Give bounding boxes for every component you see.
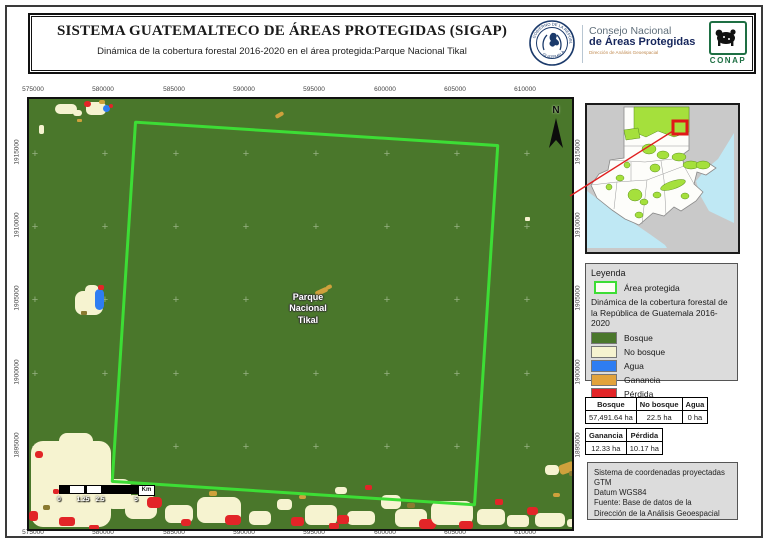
table-header-cell: Agua <box>682 398 708 411</box>
y-tick-label: 1905000 <box>14 285 21 310</box>
landcover-patch <box>573 509 574 515</box>
legend-swatch <box>591 346 617 358</box>
coordinate-info-box: Sistema de coordenadas proyectadasGTMDat… <box>587 462 738 520</box>
x-tick-label: 575000 <box>22 86 44 93</box>
landcover-patch <box>181 519 191 526</box>
conap-jaguar-icon <box>709 21 747 55</box>
info-line: Fuente: Base de datos de la <box>594 498 731 508</box>
scale-bar-segment <box>70 486 84 493</box>
legend-item-label: Agua <box>624 361 644 371</box>
landcover-patch <box>291 517 304 526</box>
x-tick-label: 610000 <box>514 86 536 93</box>
conap-logo: CONAP <box>704 21 752 69</box>
info-line: Datum WGS84 <box>594 488 731 498</box>
table-value-row: 57,491.64 ha22.5 ha0 ha <box>586 411 708 424</box>
y-tick-label: 1910000 <box>14 212 21 237</box>
x-tick-label: 585000 <box>163 86 185 93</box>
title-block: SISTEMA GUATEMALTECO DE ÁREAS PROTEGIDAS… <box>32 23 532 57</box>
landcover-patch <box>459 521 473 529</box>
landcover-patch <box>407 503 415 508</box>
legend-item: No bosque <box>591 346 732 358</box>
landcover-patch <box>39 125 44 134</box>
landcover-patch <box>525 217 530 221</box>
landcover-patch <box>99 100 105 104</box>
table-value-cell: 0 ha <box>682 411 708 424</box>
landcover-patch <box>59 517 75 526</box>
landcover-patch <box>535 513 565 527</box>
conap-logo-text: CONAP <box>704 56 752 65</box>
map-layout-page: SISTEMA GUATEMALTECO DE ÁREAS PROTEGIDAS… <box>0 0 768 543</box>
inset-locator-map <box>585 103 740 254</box>
guatemala-inset-icon <box>587 105 734 248</box>
legend-items: BosqueNo bosqueAguaGananciaPérdida <box>591 332 732 400</box>
landcover-patch <box>275 111 285 119</box>
landcover-patch <box>329 523 339 529</box>
header-inner-border: SISTEMA GUATEMALTECO DE ÁREAS PROTEGIDAS… <box>31 16 753 71</box>
table-header-cell: Ganancia <box>586 429 627 442</box>
landcover-patch <box>43 505 50 510</box>
landcover-patch <box>29 511 38 521</box>
x-tick-label: 605000 <box>444 86 466 93</box>
scale-bar-label: 1.25 <box>77 496 90 503</box>
landcover-patch <box>347 511 375 525</box>
scale-bar-unit: Km <box>138 485 155 496</box>
legend-item: Agua <box>591 360 732 372</box>
landcover-patch <box>98 285 104 290</box>
landcover-patch <box>553 493 560 497</box>
table-header-cell: Bosque <box>586 398 637 411</box>
conap-line3: Dirección de Análisis Geoespacial <box>589 51 704 56</box>
legend-area-label: Área protegida <box>624 283 680 293</box>
landcover-patch <box>495 499 503 505</box>
landcover-patch <box>84 101 91 107</box>
landcover-patch <box>277 499 292 510</box>
legend-item-label: Ganancia <box>624 375 660 385</box>
landcover-patch <box>59 433 93 457</box>
page-title: SISTEMA GUATEMALTECO DE ÁREAS PROTEGIDAS… <box>32 23 532 40</box>
y-tick-label: 1915000 <box>14 139 21 164</box>
table-header-row: BosqueNo bosqueAgua <box>586 398 708 411</box>
scale-bar-segment <box>87 486 101 493</box>
north-arrow-icon <box>543 116 569 150</box>
scale-bar-segment <box>60 486 70 493</box>
y-tick-label: 1910000 <box>575 212 582 237</box>
conap-wordmark: Consejo Nacional de Áreas Protegidas Dir… <box>589 26 704 55</box>
info-line: GTM <box>594 478 731 488</box>
info-line: Dirección de la Análisis Geoespacial <box>594 509 731 519</box>
table-header-cell: No bosque <box>636 398 682 411</box>
landcover-patch <box>249 511 271 525</box>
landcover-patch <box>299 495 306 499</box>
table-value-cell: 12.33 ha <box>586 442 627 455</box>
landcover-patch <box>569 471 574 476</box>
table-value-cell: 10.17 ha <box>626 442 662 455</box>
x-tick-label: 600000 <box>374 86 396 93</box>
table-header-cell: Pérdida <box>626 429 662 442</box>
landcover-patch <box>95 289 104 310</box>
x-tick-label: 580000 <box>92 86 114 93</box>
header-box: SISTEMA GUATEMALTECO DE ÁREAS PROTEGIDAS… <box>28 13 756 74</box>
y-tick-label: 1915000 <box>575 139 582 164</box>
legend-swatch <box>591 332 617 344</box>
landcover-patch <box>225 515 241 525</box>
page-subtitle: Dinámica de la cobertura forestal 2016-2… <box>32 46 532 57</box>
legend-area-item: Área protegida <box>591 281 732 294</box>
landcover-patch <box>545 465 559 475</box>
scale-bar-label: 5 <box>134 496 138 503</box>
landcover-patch <box>209 491 217 496</box>
main-map: ++++++++++++++++++++++++++++++++++++++++… <box>27 97 574 531</box>
scale-bar-label: 2.5 <box>95 496 104 503</box>
landcover-patch <box>507 515 529 527</box>
logo-separator <box>582 25 583 63</box>
landcover-patch <box>109 104 113 108</box>
y-tick-label: 1895000 <box>14 432 21 457</box>
landcover-patch <box>567 519 574 527</box>
scale-bar-segment <box>101 486 137 493</box>
scale-bar-segments <box>59 485 138 494</box>
protected-area-swatch <box>594 281 617 294</box>
legend-panel: Leyenda Área protegida Dinámica de la co… <box>585 263 738 381</box>
scale-bar-label: 0 <box>57 496 61 503</box>
legend-item: Ganancia <box>591 374 732 386</box>
legend-title: Leyenda <box>591 268 732 278</box>
table-header-row: GananciaPérdida <box>586 429 663 442</box>
government-seal-icon: GOBIERNO DE LA REPÚBLICA GUATEMALA <box>528 19 576 67</box>
x-tick-label: 590000 <box>233 86 255 93</box>
landcover-patch <box>147 497 162 508</box>
table-value-cell: 22.5 ha <box>636 411 682 424</box>
legend-item-label: No bosque <box>624 347 665 357</box>
legend-subtitle: Dinámica de la cobertura forestal de la … <box>591 297 732 329</box>
north-arrow: N <box>541 105 571 155</box>
y-tick-label: 1895000 <box>575 432 582 457</box>
protected-area-label: ParqueNacionalTikal <box>263 292 353 326</box>
y-tick-label: 1905000 <box>575 285 582 310</box>
landcover-patch <box>305 505 337 525</box>
legend-swatch <box>591 360 617 372</box>
landcover-patch <box>77 119 82 122</box>
stats-table-cover: BosqueNo bosqueAgua 57,491.64 ha22.5 ha0… <box>585 397 708 424</box>
legend-item: Bosque <box>591 332 732 344</box>
landcover-patch <box>35 451 43 458</box>
landcover-patch <box>89 525 99 531</box>
conap-line2: de Áreas Protegidas <box>589 37 704 49</box>
landcover-patch <box>73 110 82 116</box>
table-value-cell: 57,491.64 ha <box>586 411 637 424</box>
table-value-row: 12.33 ha10.17 ha <box>586 442 663 455</box>
legend-item-label: Bosque <box>624 333 653 343</box>
y-tick-label: 1900000 <box>14 359 21 384</box>
legend-swatch <box>591 374 617 386</box>
y-tick-label: 1900000 <box>575 359 582 384</box>
landcover-patch <box>81 311 87 315</box>
x-tick-label: 595000 <box>303 86 325 93</box>
north-label: N <box>541 105 571 116</box>
info-line: Sistema de coordenadas proyectadas <box>594 468 731 478</box>
stats-table-change: GananciaPérdida 12.33 ha10.17 ha <box>585 428 663 455</box>
scale-bar: Km 01.252.55 <box>59 485 169 494</box>
landcover-patch <box>337 515 349 524</box>
landcover-patch <box>477 509 505 525</box>
